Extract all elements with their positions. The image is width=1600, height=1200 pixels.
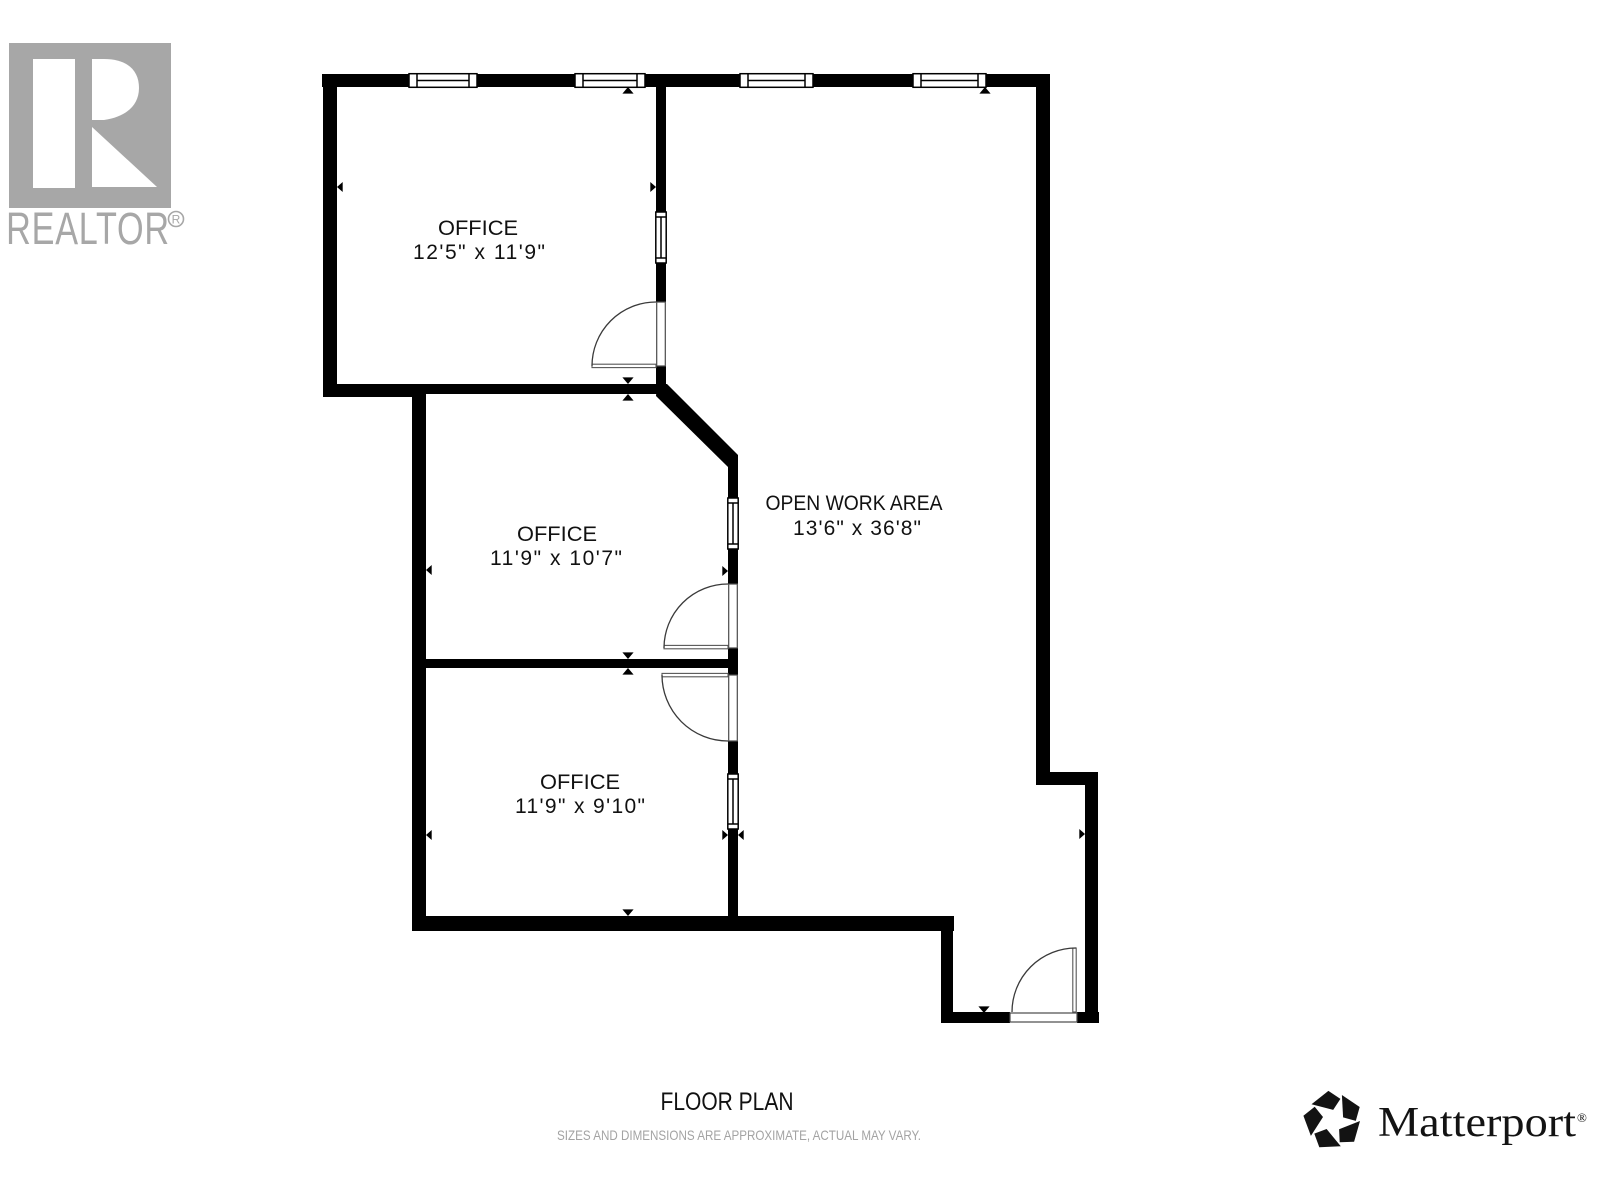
- svg-text:OFFICE: OFFICE: [540, 771, 620, 794]
- svg-text:FLOOR PLAN: FLOOR PLAN: [661, 1088, 794, 1116]
- svg-text:REALTOR: REALTOR: [6, 205, 170, 255]
- svg-text:OFFICE: OFFICE: [517, 523, 597, 546]
- svg-text:11'9" x 9'10": 11'9" x 9'10": [515, 795, 645, 818]
- svg-text:®: ®: [1577, 1110, 1587, 1125]
- svg-text:OPEN WORK AREA: OPEN WORK AREA: [766, 492, 943, 515]
- svg-text:Matterport: Matterport: [1378, 1100, 1576, 1146]
- svg-text:11'9" x 10'7": 11'9" x 10'7": [490, 547, 622, 570]
- svg-text:OFFICE: OFFICE: [438, 217, 518, 240]
- svg-text:R: R: [172, 213, 181, 227]
- svg-text:12'5" x 11'9": 12'5" x 11'9": [413, 241, 545, 264]
- svg-text:SIZES AND DIMENSIONS ARE APPRO: SIZES AND DIMENSIONS ARE APPROXIMATE, AC…: [557, 1127, 921, 1143]
- svg-text:13'6" x 36'8": 13'6" x 36'8": [793, 517, 921, 540]
